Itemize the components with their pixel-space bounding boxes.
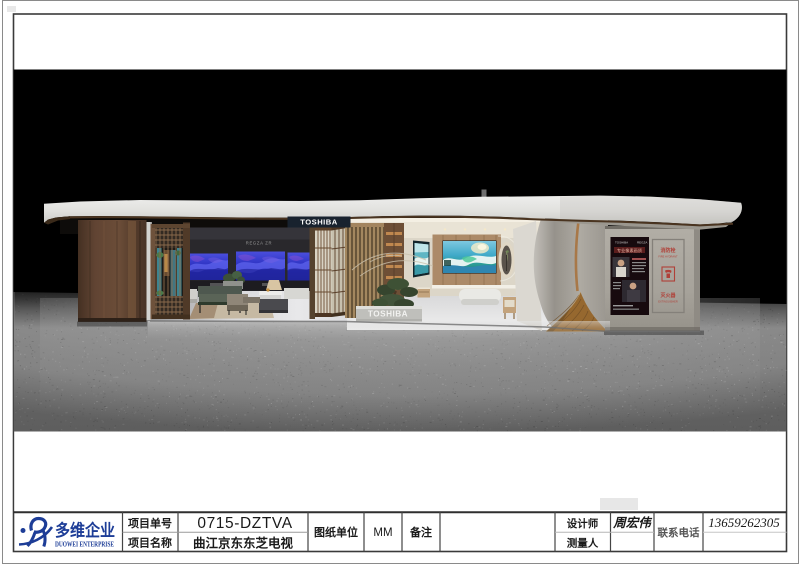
svg-text:周宏伟: 周宏伟	[612, 516, 653, 530]
svg-text:项目名称: 项目名称	[128, 536, 172, 550]
svg-text:灭火器: 灭火器	[659, 292, 676, 299]
svg-text:TOSHIBA: TOSHIBA	[368, 310, 408, 319]
svg-text:专业像素画质: 专业像素画质	[617, 247, 642, 254]
svg-text:13659262305: 13659262305	[708, 515, 780, 530]
svg-text:图纸单位: 图纸单位	[314, 525, 358, 539]
svg-text:REGZA ZR: REGZA ZR	[246, 241, 273, 246]
svg-text:备注: 备注	[409, 525, 432, 539]
svg-text:FIRE HYDRANT: FIRE HYDRANT	[658, 255, 678, 259]
svg-text:TOSHIBA: TOSHIBA	[615, 241, 628, 245]
svg-text:REGZA: REGZA	[637, 241, 647, 245]
svg-text:TOSHIBA: TOSHIBA	[300, 217, 338, 226]
svg-text:多维企业: 多维企业	[55, 520, 115, 540]
svg-text:测量人: 测量人	[567, 537, 599, 550]
svg-text:消防栓: 消防栓	[660, 247, 675, 254]
svg-text:EXTINGUISHER: EXTINGUISHER	[658, 300, 678, 304]
svg-text:项目单号: 项目单号	[128, 516, 172, 530]
svg-text:DUOWEI ENTERPRISE: DUOWEI ENTERPRISE	[55, 541, 114, 549]
svg-text:设计师: 设计师	[567, 517, 599, 530]
svg-text:MM: MM	[373, 527, 392, 539]
svg-text:联系电话: 联系电话	[658, 526, 700, 539]
svg-text:曲江京东东芝电视: 曲江京东东芝电视	[193, 536, 294, 551]
svg-text:0715-DZTVA: 0715-DZTVA	[197, 515, 292, 532]
